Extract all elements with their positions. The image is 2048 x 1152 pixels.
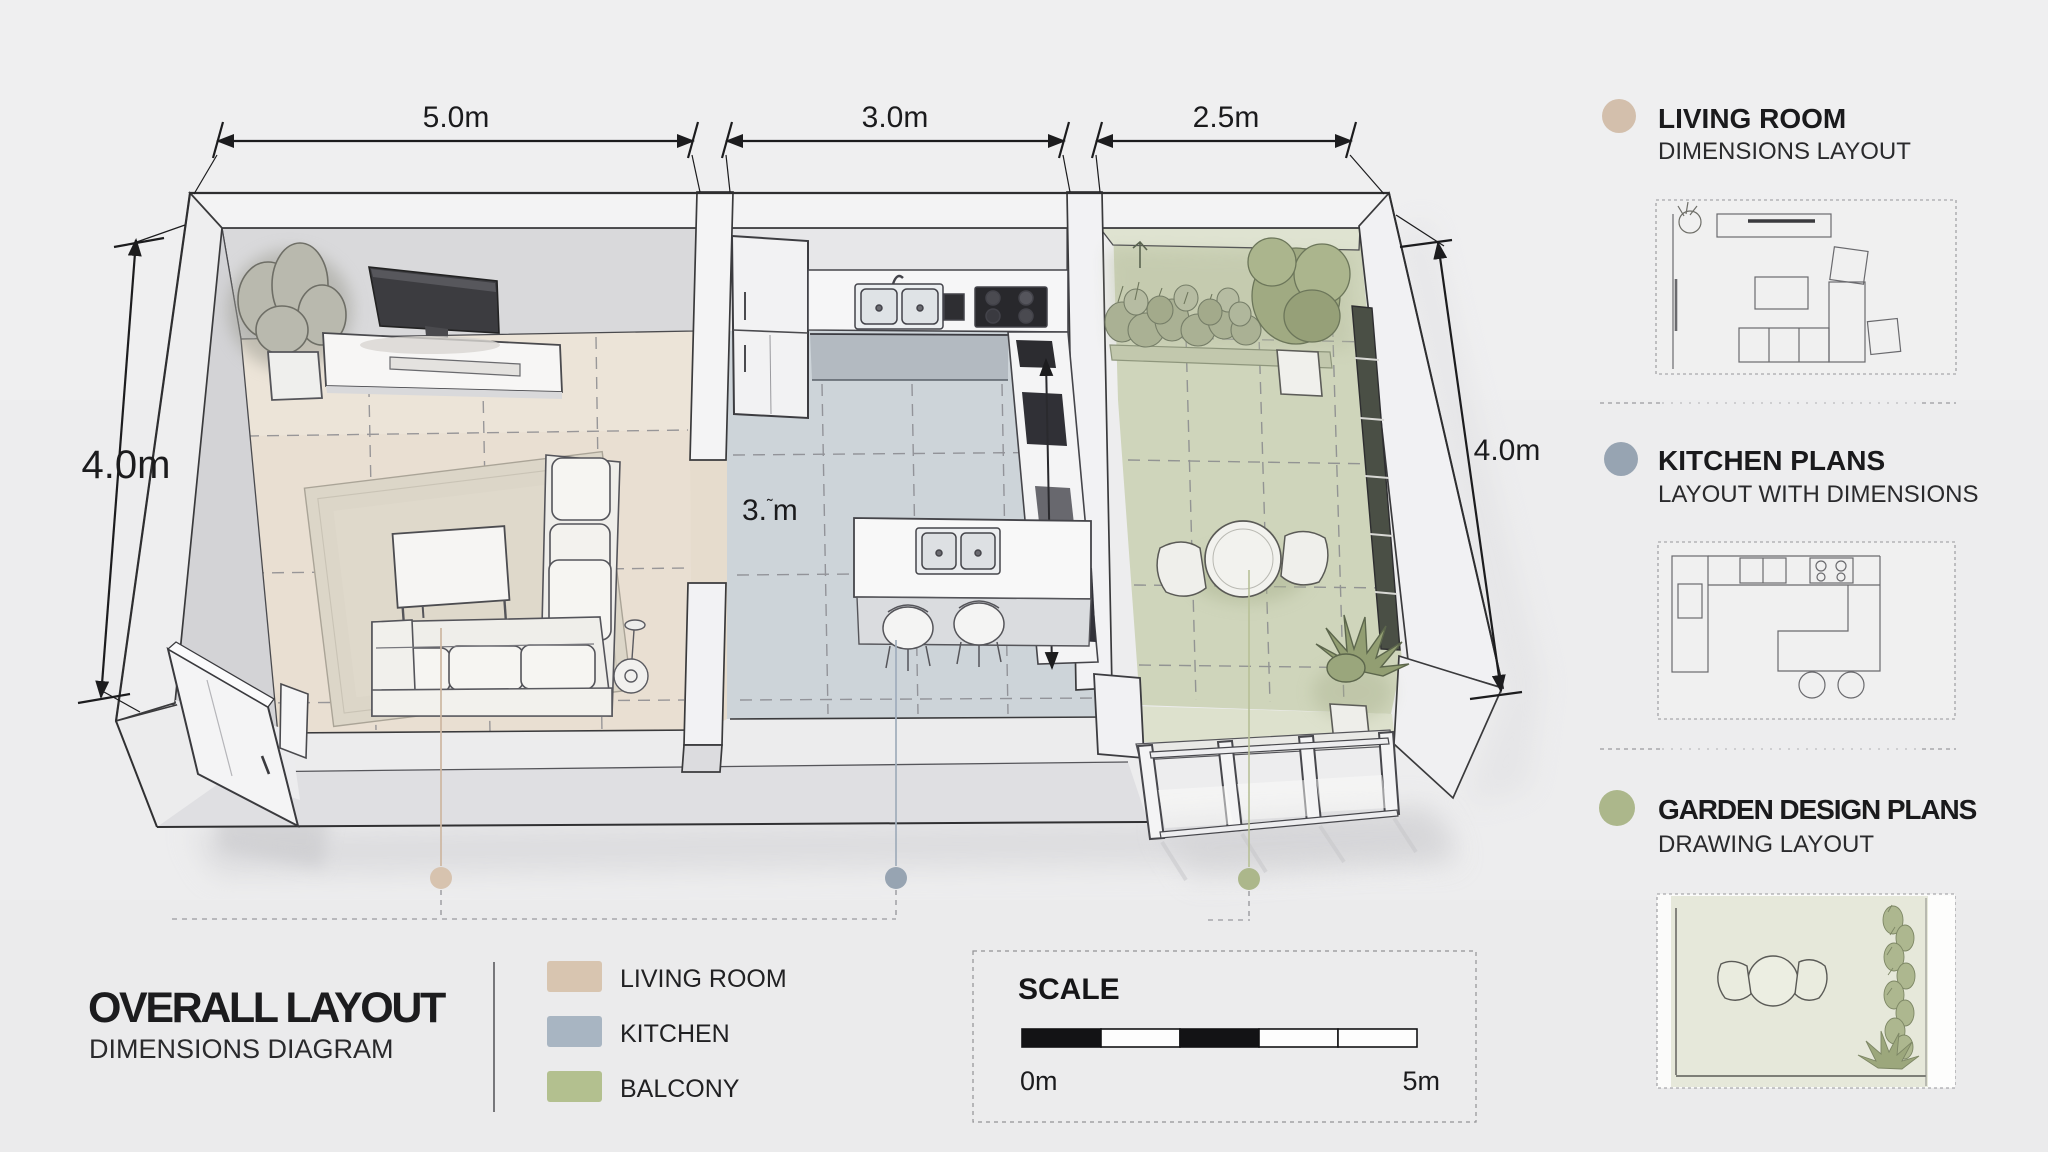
svg-text:KITCHEN: KITCHEN: [620, 1020, 730, 1048]
svg-text:LAYOUT WITH DIMENSIONS: LAYOUT WITH DIMENSIONS: [1658, 481, 1978, 508]
svg-text:OVERALL LAYOUT: OVERALL LAYOUT: [88, 984, 446, 1032]
svg-text:2.5m: 2.5m: [1193, 101, 1260, 134]
svg-text:GARDEN DESIGN PLANS: GARDEN DESIGN PLANS: [1658, 794, 1977, 825]
svg-text:DIMENSIONS DIAGRAM: DIMENSIONS DIAGRAM: [89, 1034, 394, 1064]
svg-text:SCALE: SCALE: [1018, 973, 1120, 1006]
svg-text:5m: 5m: [1402, 1066, 1440, 1096]
svg-text:4.0m: 4.0m: [1474, 434, 1541, 467]
svg-text:DRAWING LAYOUT: DRAWING LAYOUT: [1658, 831, 1874, 858]
svg-text:KITCHEN PLANS: KITCHEN PLANS: [1658, 445, 1885, 476]
svg-text:0m: 0m: [1020, 1066, 1058, 1096]
svg-text:5.0m: 5.0m: [423, 101, 490, 134]
svg-text:3.0m: 3.0m: [862, 101, 929, 134]
svg-text:BALCONY: BALCONY: [620, 1075, 740, 1103]
svg-text:LIVING ROOM: LIVING ROOM: [620, 965, 787, 993]
svg-text:4.0m: 4.0m: [82, 443, 171, 487]
svg-text:LIVING ROOM: LIVING ROOM: [1658, 103, 1846, 134]
svg-text:DIMENSIONS LAYOUT: DIMENSIONS LAYOUT: [1658, 138, 1911, 165]
